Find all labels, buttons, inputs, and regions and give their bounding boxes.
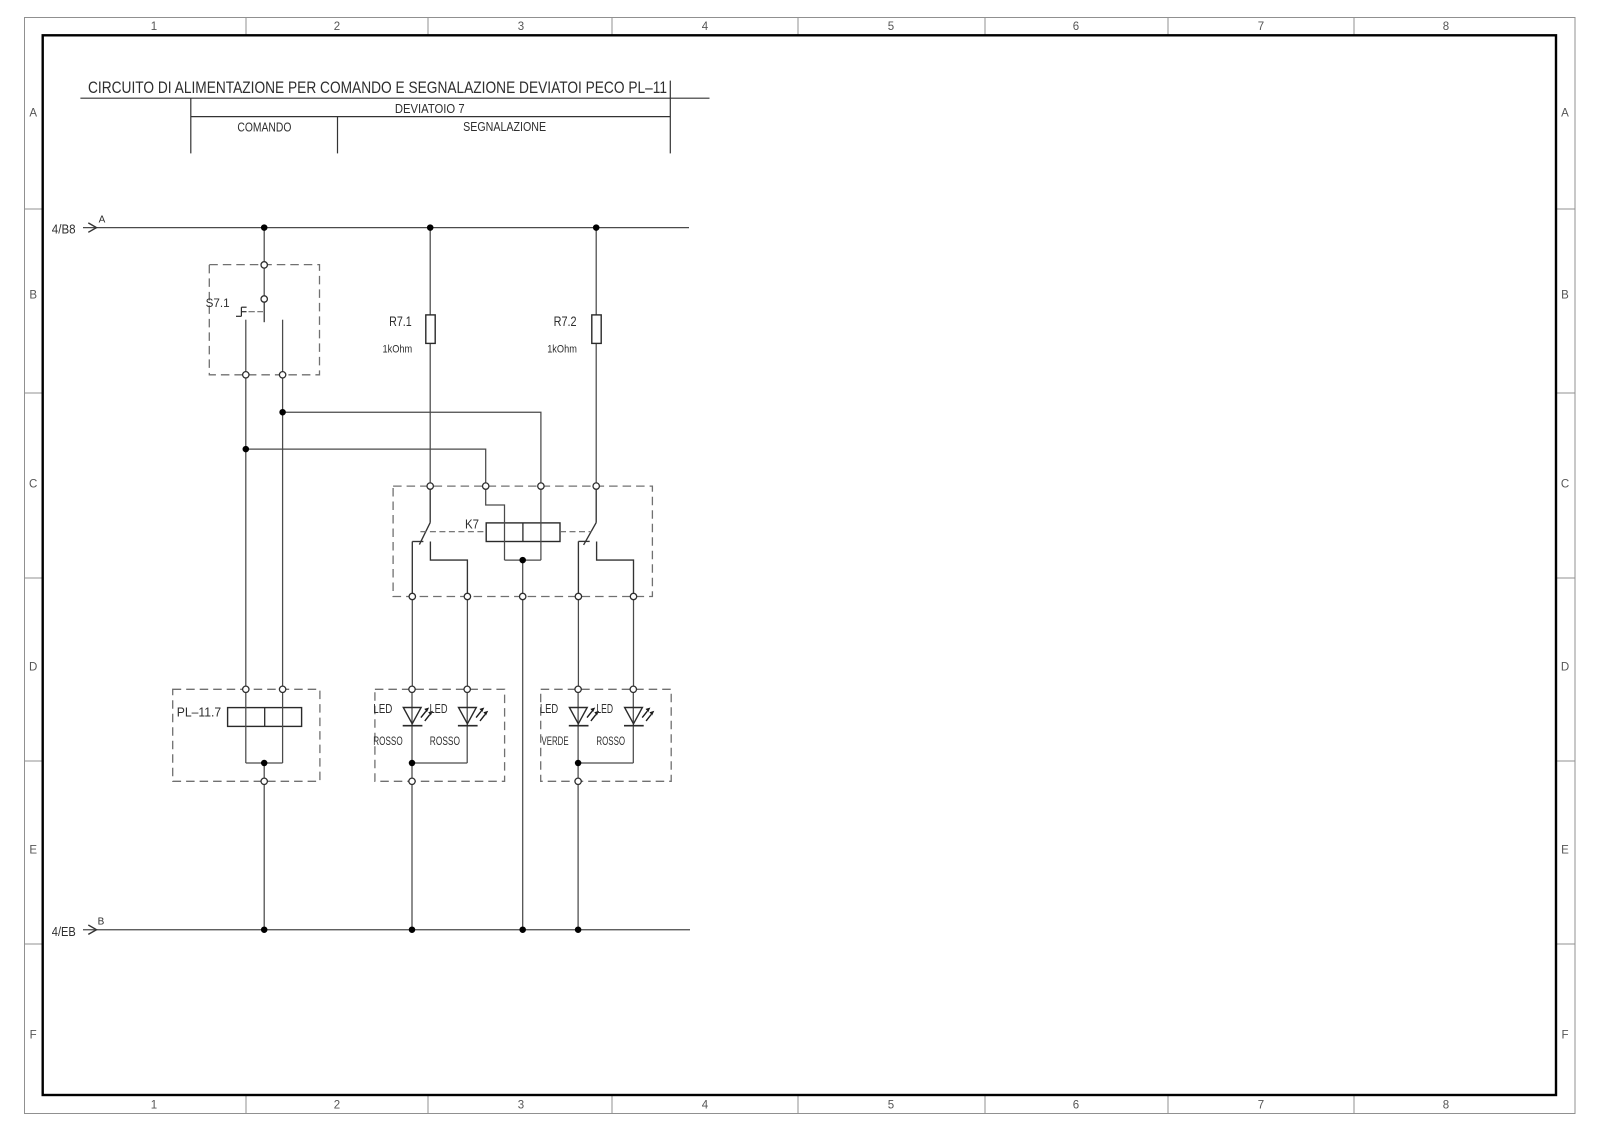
svg-text:1kOhm: 1kOhm (547, 344, 577, 356)
svg-text:7: 7 (1258, 1100, 1264, 1112)
svg-text:DEVIATOIO 7: DEVIATOIO 7 (395, 101, 465, 116)
svg-text:SEGNALAZIONE: SEGNALAZIONE (463, 119, 546, 134)
svg-text:8: 8 (1443, 1100, 1449, 1112)
svg-text:CIRCUITO DI ALIMENTAZIONE PER: CIRCUITO DI ALIMENTAZIONE PER COMANDO E … (88, 78, 667, 97)
svg-text:1kOhm: 1kOhm (383, 344, 413, 356)
svg-text:A: A (99, 214, 106, 225)
svg-text:2: 2 (334, 1100, 340, 1112)
svg-text:C: C (29, 478, 37, 490)
svg-text:R7.1: R7.1 (389, 313, 412, 329)
svg-text:LED: LED (373, 701, 392, 716)
svg-text:4: 4 (702, 21, 709, 33)
svg-text:E: E (1561, 844, 1569, 856)
svg-text:C: C (1561, 478, 1569, 490)
svg-text:E: E (29, 844, 37, 856)
svg-text:S7.1: S7.1 (206, 296, 230, 310)
svg-text:4/EB: 4/EB (52, 925, 76, 939)
svg-text:ROSSO: ROSSO (430, 736, 460, 748)
svg-text:1: 1 (151, 21, 157, 33)
svg-text:ROSSO: ROSSO (596, 736, 625, 748)
svg-text:F: F (1561, 1029, 1568, 1041)
svg-text:2: 2 (334, 21, 340, 33)
svg-text:3: 3 (518, 1100, 524, 1112)
svg-text:PL–11.7: PL–11.7 (177, 705, 222, 719)
svg-text:A: A (1561, 107, 1569, 119)
svg-text:F: F (30, 1029, 37, 1041)
svg-text:1: 1 (151, 1100, 157, 1112)
svg-text:LED: LED (430, 701, 448, 716)
svg-text:7: 7 (1258, 21, 1264, 33)
svg-text:A: A (29, 107, 37, 119)
svg-text:B: B (1561, 289, 1569, 301)
svg-text:5: 5 (888, 21, 894, 33)
svg-text:6: 6 (1073, 1100, 1079, 1112)
svg-text:LED: LED (540, 701, 558, 716)
svg-text:3: 3 (518, 21, 524, 33)
svg-text:K7: K7 (465, 517, 479, 532)
svg-text:5: 5 (888, 1100, 894, 1112)
svg-text:R7.2: R7.2 (554, 313, 577, 329)
svg-text:B: B (98, 916, 105, 927)
svg-text:LED: LED (596, 701, 613, 716)
svg-text:4/B8: 4/B8 (52, 223, 76, 237)
svg-text:4: 4 (702, 1100, 709, 1112)
svg-text:B: B (29, 289, 37, 301)
svg-text:6: 6 (1073, 21, 1079, 33)
svg-text:COMANDO: COMANDO (237, 120, 291, 135)
svg-text:D: D (1561, 661, 1569, 673)
svg-text:D: D (29, 661, 37, 673)
svg-text:VERDE: VERDE (542, 736, 569, 748)
svg-text:ROSSO: ROSSO (373, 736, 402, 748)
svg-text:8: 8 (1443, 21, 1449, 33)
